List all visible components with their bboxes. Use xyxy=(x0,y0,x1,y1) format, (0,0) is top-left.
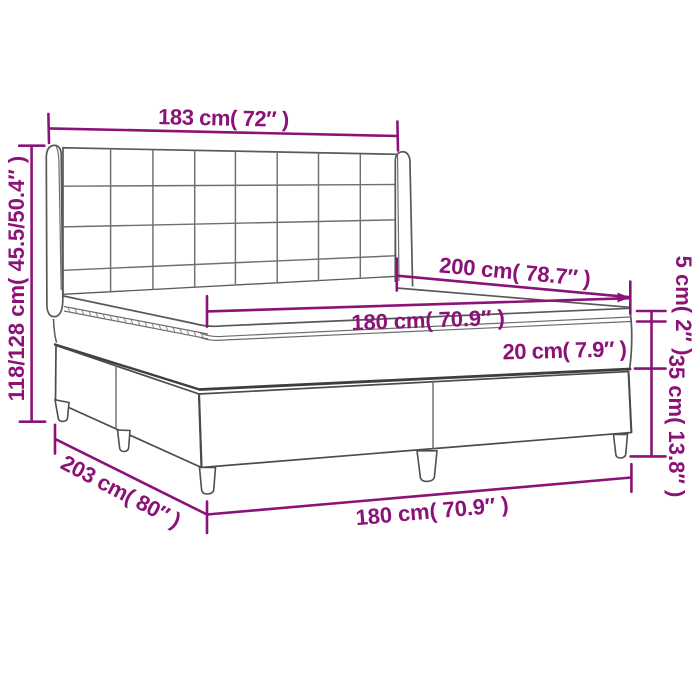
svg-text:180 cm( 70.9″ ): 180 cm( 70.9″ ) xyxy=(355,492,510,531)
svg-text:180 cm( 70.9″ ): 180 cm( 70.9″ ) xyxy=(351,305,505,335)
svg-text:118/128 cm( 45.5/50.4″ ): 118/128 cm( 45.5/50.4″ ) xyxy=(4,156,29,401)
svg-text:203 cm( 80″ ): 203 cm( 80″ ) xyxy=(57,450,185,533)
svg-text:35 cm( 13.8″ ): 35 cm( 13.8″ ) xyxy=(664,355,689,498)
svg-text:20 cm( 7.9″ ): 20 cm( 7.9″ ) xyxy=(502,336,627,364)
svg-text:5 cm( 2″ ): 5 cm( 2″ ) xyxy=(671,256,696,356)
svg-text:183 cm( 72″ ): 183 cm( 72″ ) xyxy=(158,104,289,132)
